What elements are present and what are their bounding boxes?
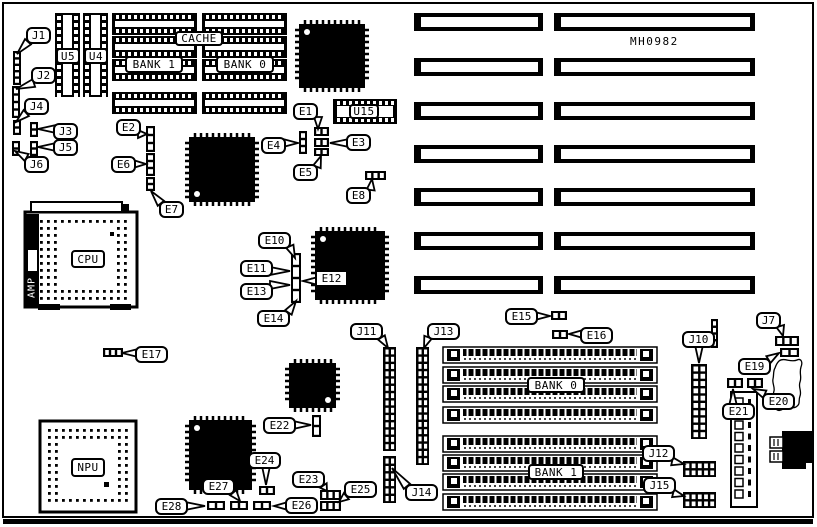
cache-label: CACHE bbox=[175, 31, 223, 46]
npu-socket-extras bbox=[104, 482, 109, 487]
callout-e20: E20 bbox=[762, 393, 795, 410]
motherboard-jumper-diagram: J1J2J4J3J5J6E2E6E7E1E4E3E5E8E10E11E13E14… bbox=[0, 0, 817, 527]
callout-e21: E21 bbox=[722, 403, 755, 420]
callout-e12: E12 bbox=[315, 270, 348, 287]
e27-jumper bbox=[230, 501, 248, 510]
ram-bank-0-label: BANK 0 bbox=[527, 377, 585, 393]
e8-jumper bbox=[365, 171, 386, 180]
callout-e11: E11 bbox=[240, 260, 273, 277]
j5-jumper bbox=[30, 141, 38, 156]
keyboard-connector bbox=[770, 431, 812, 469]
qfp-chip-e bbox=[285, 359, 340, 412]
e20-jumper bbox=[747, 378, 763, 388]
callout-e17: E17 bbox=[135, 346, 168, 363]
callout-e2: E2 bbox=[116, 119, 141, 136]
u15-label: U15 bbox=[349, 104, 379, 119]
board-code: MH0982 bbox=[630, 35, 679, 48]
j1-jumper bbox=[13, 51, 21, 85]
callout-j6: J6 bbox=[24, 156, 49, 173]
cache-chip-right-4 bbox=[202, 92, 287, 114]
e7-jumper bbox=[146, 177, 155, 191]
callout-e24: E24 bbox=[248, 452, 281, 469]
callout-j10: J10 bbox=[682, 331, 715, 348]
e21-jumper bbox=[727, 378, 743, 388]
isa-slot-row-3 bbox=[414, 102, 755, 120]
callout-j4: J4 bbox=[24, 98, 49, 115]
callout-e27: E27 bbox=[202, 478, 235, 495]
callout-j12: J12 bbox=[642, 445, 675, 462]
e26-jumper bbox=[253, 501, 271, 510]
board-bottom-edge bbox=[3, 519, 813, 524]
callout-j14: J14 bbox=[405, 484, 438, 501]
callout-e15: E15 bbox=[505, 308, 538, 325]
qfp-chip-c bbox=[311, 227, 389, 304]
callout-e22: E22 bbox=[263, 417, 296, 434]
callout-j15: J15 bbox=[643, 477, 676, 494]
callout-j7: J7 bbox=[756, 312, 781, 329]
simm-socket-8 bbox=[443, 494, 657, 510]
j10-header bbox=[691, 364, 707, 439]
callout-j1: J1 bbox=[26, 27, 51, 44]
u5-label: U5 bbox=[56, 48, 80, 64]
callout-e1: E1 bbox=[293, 103, 318, 120]
j13-header bbox=[416, 347, 429, 465]
isa-slot-row-5 bbox=[414, 188, 755, 206]
j3-jumper bbox=[30, 122, 38, 137]
callout-j2: J2 bbox=[31, 67, 56, 84]
callout-e10: E10 bbox=[258, 232, 291, 249]
callout-j3: J3 bbox=[53, 123, 78, 140]
j7-jumper bbox=[775, 336, 799, 346]
callout-tail-e11 bbox=[270, 267, 290, 275]
callout-j5: J5 bbox=[53, 139, 78, 156]
j2-jumper bbox=[12, 86, 20, 118]
e1-jumper bbox=[314, 127, 329, 136]
ram-bank-1-label: BANK 1 bbox=[528, 464, 584, 480]
callout-e16: E16 bbox=[580, 327, 613, 344]
callout-e5: E5 bbox=[293, 164, 318, 181]
e16-jumper bbox=[552, 330, 568, 339]
qfp-chip-b bbox=[185, 133, 259, 206]
e28-jumper bbox=[207, 501, 225, 510]
u4-label: U4 bbox=[84, 48, 108, 64]
e17-jumper bbox=[103, 348, 123, 357]
e23-jumper bbox=[320, 490, 341, 500]
isa-slot-row-7 bbox=[414, 276, 755, 294]
callout-e19: E19 bbox=[738, 358, 771, 375]
callout-e6: E6 bbox=[111, 156, 136, 173]
callout-e4: E4 bbox=[261, 137, 286, 154]
callout-e3: E3 bbox=[346, 134, 371, 151]
j15-header bbox=[683, 492, 716, 508]
cache-bank-0-label: BANK 0 bbox=[216, 56, 274, 73]
e4-jumper bbox=[299, 131, 307, 154]
callout-tail-e13 bbox=[270, 281, 290, 289]
simm-socket-4 bbox=[443, 407, 657, 423]
e15-jumper bbox=[551, 311, 567, 320]
amp-label: AMP bbox=[27, 268, 38, 308]
e19-jumper bbox=[780, 348, 799, 357]
callout-e26: E26 bbox=[285, 497, 318, 514]
e22-jumper bbox=[312, 415, 321, 437]
isa-slot-row-2 bbox=[414, 58, 755, 76]
simm-socket-1 bbox=[443, 347, 657, 363]
callout-e13: E13 bbox=[240, 283, 273, 300]
cache-bank-1-label: BANK 1 bbox=[125, 56, 183, 73]
j11-header bbox=[383, 347, 396, 451]
simm-socket-5 bbox=[443, 436, 657, 452]
board-graphics bbox=[0, 0, 817, 527]
callout-e8: E8 bbox=[346, 187, 371, 204]
isa-slot-row-4 bbox=[414, 145, 755, 163]
cache-chip-left-4 bbox=[112, 92, 197, 114]
e24-jumper bbox=[259, 486, 275, 495]
j12-header bbox=[683, 461, 716, 477]
npu-label: NPU bbox=[71, 458, 105, 477]
callout-e7: E7 bbox=[159, 201, 184, 218]
callout-tail-e28 bbox=[185, 502, 205, 510]
callout-e28: E28 bbox=[155, 498, 188, 515]
e2-jumper bbox=[146, 126, 155, 152]
callout-e14: E14 bbox=[257, 310, 290, 327]
isa-slot-row-6 bbox=[414, 232, 755, 250]
callout-e25: E25 bbox=[344, 481, 377, 498]
j14-header bbox=[383, 456, 396, 503]
callout-j11: J11 bbox=[350, 323, 383, 340]
e3-jumper bbox=[314, 138, 329, 147]
isa-slot-row-1 bbox=[414, 13, 755, 31]
qfp-chip-a bbox=[295, 20, 369, 92]
cpu-label: CPU bbox=[71, 250, 105, 268]
callout-j13: J13 bbox=[427, 323, 460, 340]
callout-e23: E23 bbox=[292, 471, 325, 488]
